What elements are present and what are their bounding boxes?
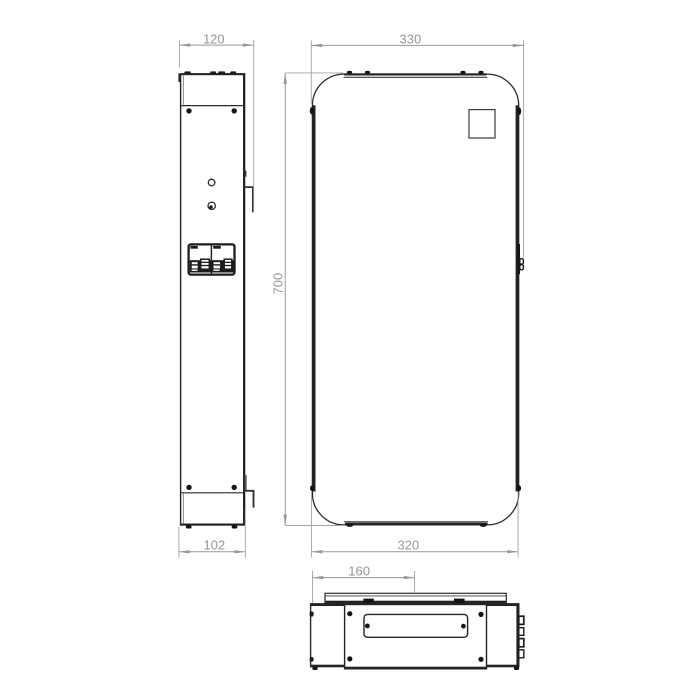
svg-text:120: 120 [203, 31, 225, 46]
svg-text:700: 700 [270, 273, 285, 295]
svg-text:320: 320 [397, 538, 419, 553]
svg-text:102: 102 [203, 537, 225, 552]
svg-text:160: 160 [348, 563, 370, 578]
svg-text:330: 330 [400, 31, 422, 46]
